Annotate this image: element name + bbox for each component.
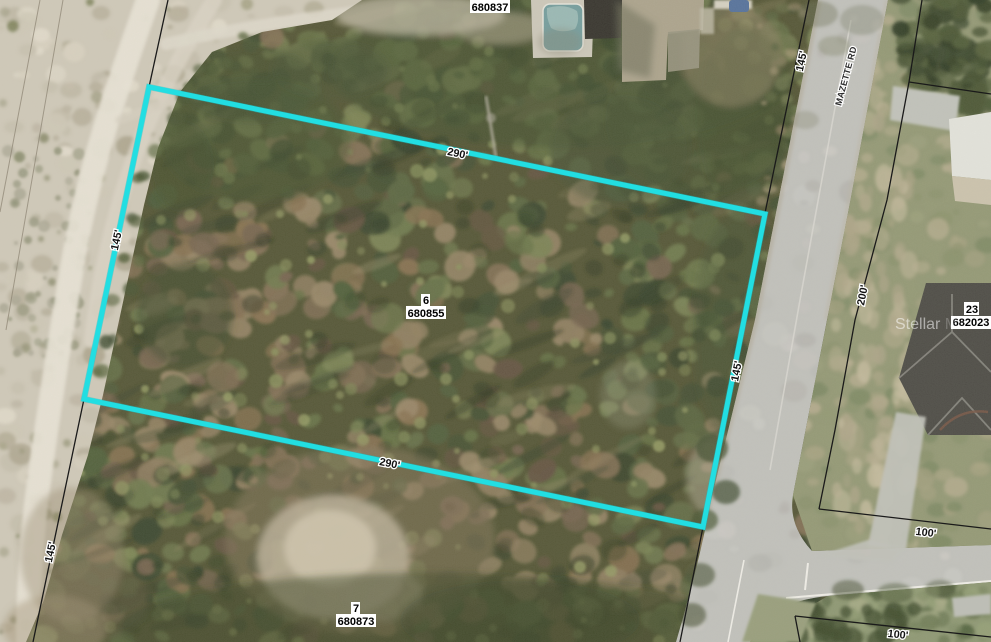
svg-text:100': 100'	[887, 628, 909, 642]
svg-text:682023: 682023	[953, 317, 990, 329]
svg-text:Stellar M: Stellar M	[895, 316, 958, 333]
svg-text:7: 7	[353, 603, 359, 615]
svg-text:680873: 680873	[338, 616, 375, 628]
svg-text:100': 100'	[915, 526, 937, 540]
svg-text:680837: 680837	[472, 2, 509, 14]
svg-text:6: 6	[423, 295, 429, 307]
svg-text:23: 23	[966, 304, 978, 316]
svg-text:680855: 680855	[408, 308, 445, 320]
